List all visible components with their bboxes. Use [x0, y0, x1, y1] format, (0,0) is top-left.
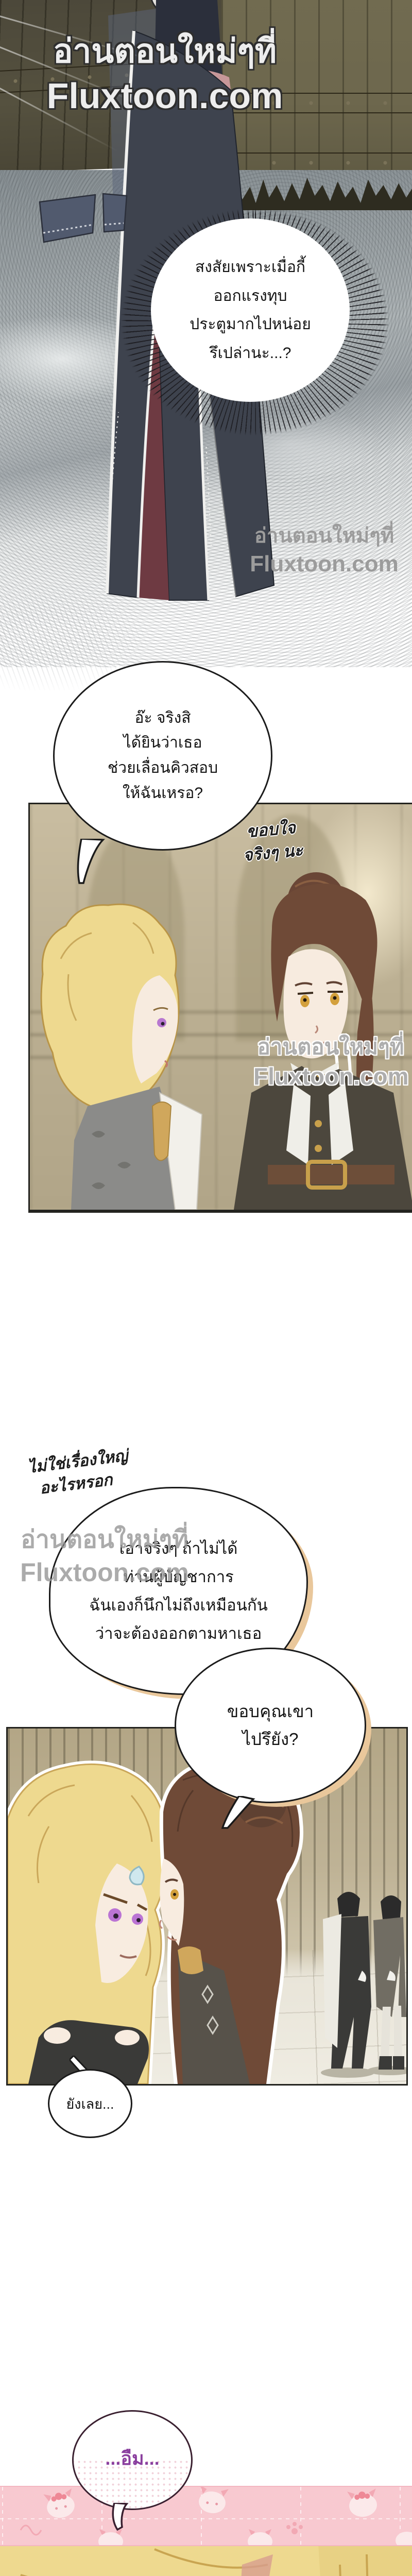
handwritten-line: จริงๆ นะ [242, 841, 303, 865]
speech-bubble-thanked: ขอบคุณเขา ไปรึยัง? [175, 1648, 366, 1803]
speech-bubble-notyet: ยังเลย... [48, 2069, 132, 2138]
shadow [321, 2067, 374, 2078]
handwritten-line: ไม่ใช่เรื่องใหญ่ [27, 1446, 129, 1477]
pupil [173, 1893, 176, 1896]
panel-door-scene: สงสัยเพราะเมื่อกี้ ออกแรงทุบ ประตูมากไปห… [0, 0, 412, 667]
speech-line: ท่านผู้บัญชาการ [123, 1563, 234, 1591]
blonde-pupil [161, 1022, 165, 1026]
hand [44, 2027, 71, 2044]
speech-line: ...อืม... [105, 2444, 159, 2473]
speech-line: ไปรึยัง? [242, 1725, 298, 1753]
speech-line: ช่วยเลื่อนคิวสอบ [108, 756, 218, 781]
pink-band-pattern [0, 2487, 412, 2545]
belt [268, 1165, 394, 1184]
speech-line: ยังเลย... [66, 2093, 114, 2115]
man2-coat [373, 1917, 406, 2017]
brunette-character [234, 872, 412, 1210]
pupil [333, 996, 337, 1000]
man1-head [337, 1892, 360, 1917]
foreground-blonde [8, 1764, 167, 2084]
man2-boots [379, 2056, 404, 2070]
boot-right [103, 194, 127, 232]
panel-closeup-face: อ่านตอนใหม่ๆที่ Fluxtoon.com [0, 2544, 412, 2576]
speech-bubble-tail [108, 2503, 133, 2531]
speech-bubble-tail [221, 1796, 255, 1829]
blonde-hair-closeup [0, 2544, 412, 2576]
paw-print [286, 2522, 303, 2534]
pupil [113, 1913, 118, 1919]
boot-left [40, 195, 95, 242]
handwritten-nobigdeal: ไม่ใช่เรื่องใหญ่ อะไรหรอก [26, 1444, 139, 1501]
speech-line: ว่าจะต้องออกตามหาเธอ [95, 1619, 262, 1648]
speech-bubble-tail [76, 839, 106, 884]
closeup-art [0, 2544, 412, 2576]
blonde-character [41, 904, 202, 1210]
pupil [303, 998, 307, 1002]
thought-line: ออกแรงทุบ [213, 282, 287, 311]
speech-line: เอาจริงๆ ถ้าไม่ได้ [119, 1534, 238, 1563]
gold-cravat [152, 1102, 171, 1161]
speech-line: ขอบคุณเขา [227, 1698, 314, 1725]
gold-button [315, 1145, 322, 1152]
gold-button [315, 1120, 322, 1127]
pink-pattern-band [0, 2486, 412, 2546]
thought-line: รึเปล่านะ...? [210, 339, 291, 368]
handwritten-line: ขอบใจ [246, 818, 297, 841]
pupil [136, 1918, 141, 1922]
gold-collar [178, 1946, 203, 1974]
man2-head [381, 1895, 401, 1919]
hand [115, 2030, 140, 2045]
comic-page: สงสัยเพราะเมื่อกี้ ออกแรงทุบ ประตูมากไปห… [0, 0, 412, 2576]
thought-line: ประตูมากไปหน่อย [190, 310, 311, 339]
speech-line: ได้ยินว่าเธอ [124, 731, 202, 756]
background-men [321, 1892, 406, 2078]
speech-line: อ๊ะ จริงสิ [134, 706, 191, 731]
speech-line: ฉันเองก็นึกไม่ถึงเหมือนกัน [89, 1591, 268, 1619]
speech-line: ให้ฉันเหรอ? [123, 781, 203, 806]
brunette-face [283, 949, 348, 1058]
handwritten-thanks: ขอบใจ จริงๆ นะ [229, 815, 315, 868]
thought-line: สงสัยเพราะเมื่อกี้ [195, 253, 305, 282]
handwritten-line: อะไรหรอก [29, 1471, 113, 1499]
thought-bubble: สงสัยเพราะเมื่อกี้ ออกแรงทุบ ประตูมากไปห… [151, 218, 350, 402]
tail-ornament [206, 443, 211, 546]
speech-bubble-um: ...อืม... [72, 2410, 193, 2510]
squiggle [21, 2526, 41, 2535]
